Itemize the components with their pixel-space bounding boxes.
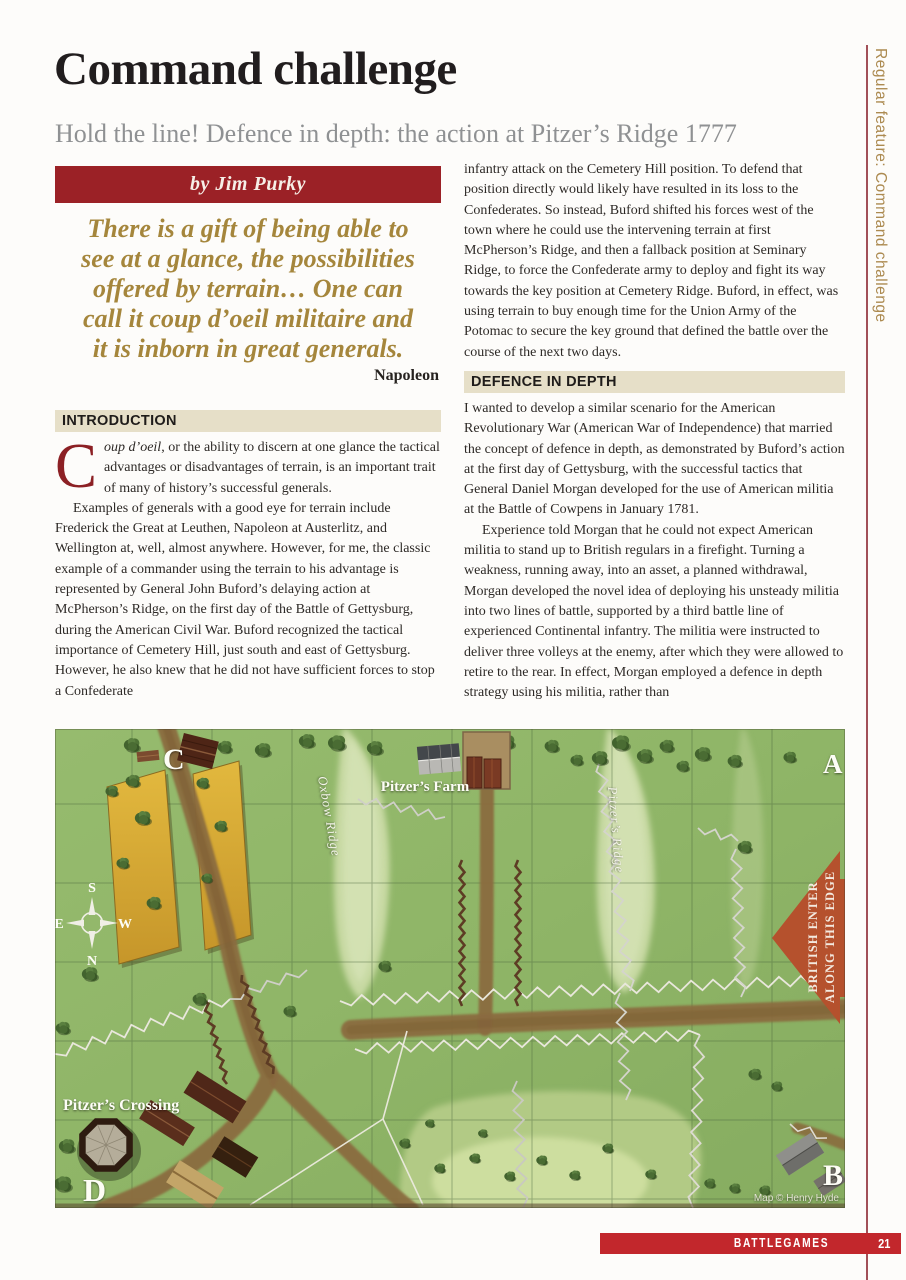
building-farmyard [463, 732, 510, 789]
sidebar-vertical-label: Regular feature: Command challenge [871, 48, 889, 323]
compass-west: W [118, 917, 132, 932]
right-column: infantry attack on the Cemetery Hill pos… [464, 160, 845, 703]
defence-paragraph-2: Experience told Morgan that he could not… [464, 521, 845, 704]
map-corner-b: B [823, 1159, 843, 1192]
section-heading-introduction: INTRODUCTION [55, 410, 441, 432]
quote-line: offered by terrain… One can [55, 274, 441, 304]
compass-east: E [55, 917, 64, 932]
magazine-name: BATTLEGAMES [734, 1236, 829, 1250]
map-label-farm: Pitzer’s Farm [381, 779, 470, 795]
column2-text: infantry attack on the Cemetery Hill pos… [464, 160, 845, 363]
intro-paragraph-1: Coup d’oeil, or the ability to discern a… [55, 438, 441, 499]
section-heading-defence: DEFENCE IN DEPTH [464, 371, 845, 393]
quote-block: There is a gift of being able to see at … [55, 214, 441, 364]
battle-map: S N E W BRITISH ENTER ALONG THIS EDGE C … [55, 729, 845, 1208]
defence-text: I wanted to develop a similar scenario f… [464, 399, 845, 703]
road-from-farm [485, 785, 487, 1029]
left-column: by Jim Purky There is a gift of being ab… [55, 166, 441, 702]
quote-attribution: Napoleon [55, 367, 441, 385]
building-farm-barn [417, 743, 461, 775]
arrow-text-line2: ALONG THIS EDGE [823, 871, 837, 1003]
quote-line: see at a glance, the possibilities [55, 244, 441, 274]
quote-line: it is inborn in great generals. [55, 334, 441, 364]
introduction-text: Coup d’oeil, or the ability to discern a… [55, 438, 441, 702]
map-label-crossing: Pitzer’s Crossing [63, 1097, 179, 1114]
sidebar-rule [866, 45, 868, 1280]
column2-paragraph-1: infantry attack on the Cemetery Hill pos… [464, 160, 845, 363]
quote-line: There is a gift of being able to [55, 214, 441, 244]
dropcap: C [55, 438, 104, 492]
defence-paragraph-1: I wanted to develop a similar scenario f… [464, 399, 845, 521]
page-title: Command challenge [54, 42, 457, 96]
arrow-text-line1: BRITISH ENTER [806, 881, 820, 992]
map-corner-d: D [83, 1172, 106, 1208]
quote-line: call it coup d’oeil militaire and [55, 304, 441, 334]
intro-paragraph-2: Examples of generals with a good eye for… [55, 499, 441, 702]
map-corner-a: A [823, 749, 843, 779]
magazine-page: Command challenge Hold the line! Defence… [0, 0, 906, 1280]
byline-banner: by Jim Purky [55, 166, 441, 203]
battle-map-svg: S N E W BRITISH ENTER ALONG THIS EDGE C … [55, 729, 845, 1208]
compass-south: S [88, 881, 96, 896]
intro-lead-italic: oup d’oeil [104, 440, 161, 455]
map-corner-c: C [163, 743, 185, 776]
map-credit: Map © Henry Hyde [754, 1193, 840, 1204]
compass-north: N [87, 954, 97, 969]
page-number: 21 [878, 1236, 890, 1251]
page-subtitle: Hold the line! Defence in depth: the act… [55, 119, 737, 149]
footer-bar: BATTLEGAMES 21 [600, 1233, 901, 1254]
